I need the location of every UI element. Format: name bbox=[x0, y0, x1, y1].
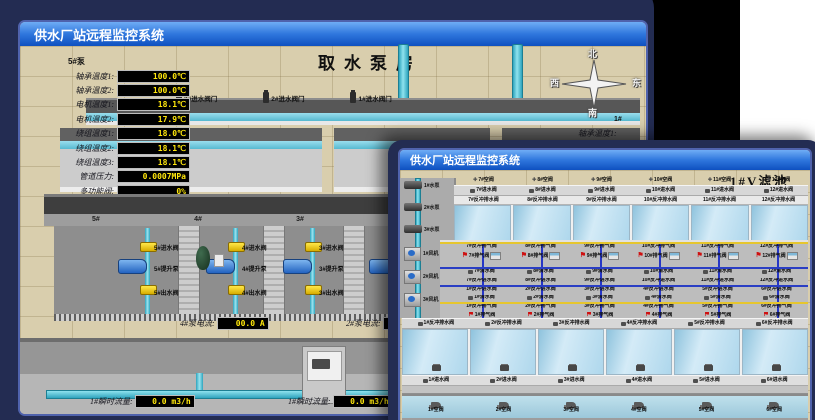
backwash-drain-valve[interactable]: 12#反冲排水阀 bbox=[749, 196, 808, 204]
valve-label: 5#出水阀 bbox=[154, 288, 179, 297]
inlet-valve[interactable]: 1#进水阀 bbox=[402, 376, 470, 385]
inlet-valve[interactable]: 5#进水阀 bbox=[673, 376, 741, 385]
valve-label: 5#进水阀 bbox=[699, 378, 720, 383]
flow-meter-left: 1#瞬时流量: 0.0 m3/h bbox=[90, 395, 195, 408]
inlet-gate-valves: 3#进水阀门 2#进水阀门 1#进水阀门 bbox=[176, 92, 392, 103]
flow-meter-right: 1#瞬时流量: 0.0 m3/h bbox=[288, 395, 393, 408]
compass: 北 西 南 东 bbox=[552, 50, 648, 124]
inlet-valve[interactable]: 12#进水阀 bbox=[749, 186, 808, 195]
valve-label: 8#反冲排水阀 bbox=[527, 198, 558, 203]
valve-label: 7#进水阀 bbox=[476, 188, 497, 193]
exhaust-valve[interactable]: 12#排气阀 bbox=[747, 252, 806, 260]
bf-inlet-row-top: 7#反冲进水阀8#反冲进水阀9#反冲进水阀10#反冲进水阀11#反冲进水阀12#… bbox=[452, 278, 806, 283]
valve-label: 5#反冲进水阀 bbox=[702, 287, 733, 292]
top-pool-row: ✚ 7#空阀 ✚ 8#空阀 ✚ 9#空阀 bbox=[454, 176, 808, 243]
water-pumps: 1#水泵 2#水泵 3#水泵 bbox=[404, 174, 440, 240]
meter-label: 1#瞬时流量: bbox=[90, 396, 133, 407]
bottom-pool-row: 1#反冲排水阀 2#反冲排水阀 3#反冲排水阀 bbox=[402, 318, 808, 420]
compass-east: 东 bbox=[632, 76, 641, 89]
valve-icon bbox=[761, 379, 766, 383]
valve-icon bbox=[762, 270, 767, 274]
inlet-valve[interactable]: 4#进水阀 bbox=[605, 376, 673, 385]
valve-icon bbox=[645, 296, 650, 300]
sensor-row: 绕组温度1: 18.0℃ bbox=[24, 127, 200, 141]
valve-icon bbox=[470, 189, 475, 193]
bay-header: 5# bbox=[92, 214, 100, 226]
clean-water-valve[interactable]: 1#清水阀 bbox=[452, 295, 511, 300]
valve-label: 11#反冲排气阀 bbox=[701, 244, 734, 249]
valve-icon bbox=[763, 296, 768, 300]
inlet-valve[interactable]: 3#进水阀 bbox=[537, 376, 605, 385]
pump-bay-4: 4#进水阀 4#提升泵 4#出水阀 bbox=[205, 228, 291, 314]
backwash-drain-valve[interactable]: 1#反冲排水阀 bbox=[402, 319, 470, 328]
pump-icon bbox=[404, 181, 422, 189]
valve-label: 7#空阀 bbox=[478, 178, 494, 183]
clean-water-valve[interactable]: 11#清水阀 bbox=[688, 269, 747, 274]
exhaust-valve[interactable]: 8#排气阀 bbox=[511, 252, 570, 260]
valve-label: 11#反冲进水阀 bbox=[701, 278, 734, 283]
backwash-inlet-valve[interactable]: 5#反冲进水阀 bbox=[688, 287, 747, 292]
valve-label: 1#空阀 bbox=[428, 408, 444, 413]
valve-label: 11#清水阀 bbox=[709, 269, 732, 274]
valve-icon bbox=[588, 189, 593, 193]
backwash-drain-valve[interactable]: 3#反冲排水阀 bbox=[537, 319, 605, 328]
air-valve-row: ✚ 7#空阀 ✚ 8#空阀 ✚ 9#空阀 bbox=[454, 176, 808, 185]
backwash-drain-valve[interactable]: 8#反冲排水阀 bbox=[513, 196, 572, 204]
blowers: 1#风机 2#风机 3#风机 bbox=[404, 242, 439, 311]
backwash-drain-valve[interactable]: 4#反冲排水阀 bbox=[605, 319, 673, 328]
valve-label: 6#反冲排气阀 bbox=[761, 304, 792, 309]
valve-icon bbox=[485, 322, 490, 326]
valve-icon bbox=[704, 296, 709, 300]
backwash-drain-row: 1#反冲排水阀 2#反冲排水阀 3#反冲排水阀 bbox=[402, 318, 808, 329]
pump-icon bbox=[404, 225, 422, 233]
backwash-exhaust-valve[interactable]: 4#反冲排气阀 bbox=[629, 304, 688, 309]
valve-label: 3#出水阀 bbox=[319, 288, 344, 297]
filter-pool bbox=[632, 205, 689, 243]
valve-label: 11#空阀 bbox=[713, 178, 731, 183]
sensor-row: 轴承温度1: bbox=[578, 127, 648, 140]
valve-label: 8#进水阀 bbox=[535, 188, 556, 193]
scada-desktop: 供水厂站远程监控系统 取水泵房 bbox=[0, 0, 815, 420]
inlet-valve[interactable]: 7#进水阀 bbox=[454, 186, 513, 195]
valve-label: 7#反冲进水阀 bbox=[466, 278, 497, 283]
valve-label: 5#清水阀 bbox=[710, 295, 731, 300]
valve-label: 10#排气阀 bbox=[644, 254, 667, 259]
equipment-label: 1#水泵 bbox=[424, 182, 440, 189]
backwash-exhaust-valve[interactable]: 2#反冲排气阀 bbox=[511, 304, 570, 309]
blower[interactable]: 1#风机 bbox=[404, 242, 439, 265]
tank-icon bbox=[549, 252, 560, 260]
inlet-valve-row: 1#进水阀 2#进水阀 3#进水阀 bbox=[402, 375, 808, 386]
valve-icon bbox=[586, 270, 591, 274]
clean-water-valve[interactable]: 9#清水阀 bbox=[570, 269, 629, 274]
valve-label: 12#反冲排气阀 bbox=[760, 244, 793, 249]
window-frame: 供水厂站远程监控系统 1#V滤池 1#水泵 bbox=[398, 148, 812, 420]
air-valve[interactable]: 1#空阀 bbox=[402, 396, 470, 418]
valve-label: 8#空阀 bbox=[537, 178, 553, 183]
valve-icon bbox=[756, 322, 761, 326]
valve-label: 4#反冲排水阀 bbox=[627, 321, 658, 326]
pump-label: 3#提升泵 bbox=[319, 264, 344, 273]
clean-water-valve[interactable]: 5#清水阀 bbox=[688, 295, 747, 300]
valve-label: 1#反冲排水阀 bbox=[424, 321, 455, 326]
blower[interactable]: 3#风机 bbox=[404, 288, 439, 311]
valve-label: 7#反冲排水阀 bbox=[468, 198, 499, 203]
air-valve[interactable]: 6#空阀 bbox=[740, 396, 808, 418]
red-flag-icon bbox=[755, 253, 761, 260]
exhaust-valve[interactable]: 11#排气阀 bbox=[688, 252, 747, 260]
exhaust-valve[interactable]: 7#排气阀 bbox=[452, 252, 511, 260]
titlebar[interactable]: 供水厂站远程监控系统 bbox=[20, 22, 646, 46]
inlet-valve[interactable]: 6#进水阀 bbox=[740, 376, 808, 385]
valve-icon bbox=[621, 322, 626, 326]
equipment-label: 2#水泵 bbox=[424, 204, 440, 211]
sensor-row: 绕组温度3: 18.1℃ bbox=[24, 155, 200, 169]
backwash-inlet-valve[interactable]: 12#反冲进水阀 bbox=[747, 278, 806, 283]
valve-label: 12#反冲进水阀 bbox=[760, 278, 793, 283]
backwash-exhaust-valve[interactable]: 11#反冲排气阀 bbox=[688, 244, 747, 249]
backwash-drain-valve[interactable]: 11#反冲排水阀 bbox=[690, 196, 749, 204]
valve-label: 8#排气阀 bbox=[528, 254, 549, 259]
valve-icon bbox=[529, 189, 534, 193]
clean-water-valve[interactable]: 10#清水阀 bbox=[629, 269, 688, 274]
backwash-drain-valve[interactable]: 6#反冲排水阀 bbox=[740, 319, 808, 328]
backwash-inlet-valve[interactable]: 10#反冲进水阀 bbox=[629, 278, 688, 283]
sensor-row: 管道压力: 0.0007MPa bbox=[24, 170, 200, 184]
valve-label: 12#进水阀 bbox=[770, 188, 793, 193]
valve-label: 4#空阀 bbox=[631, 408, 647, 413]
sensor-label: 管道压力: bbox=[24, 171, 117, 182]
control-panel-icon bbox=[214, 254, 224, 267]
filter-pool bbox=[513, 205, 570, 243]
backwash-inlet-valve[interactable]: 9#反冲进水阀 bbox=[570, 278, 629, 283]
valve-label: 8#反冲进水阀 bbox=[525, 278, 556, 283]
red-flag-icon bbox=[580, 253, 586, 260]
valve-label: 6#反冲排水阀 bbox=[762, 321, 793, 326]
inlet-valve[interactable]: 10#进水阀 bbox=[631, 186, 690, 195]
inlet-valve[interactable]: 2#进水阀 bbox=[470, 376, 538, 385]
valve-icon bbox=[490, 379, 495, 383]
water-pump[interactable]: 3#水泵 bbox=[404, 218, 440, 240]
valve-icon bbox=[644, 270, 649, 274]
backwash-exhaust-valve[interactable]: 8#反冲排气阀 bbox=[511, 244, 570, 249]
inlet-valve[interactable]: 9#进水阀 bbox=[572, 186, 631, 195]
window-title: 供水厂站远程监控系统 bbox=[34, 25, 164, 44]
valve-label: 11#排气阀 bbox=[703, 254, 726, 259]
tank-icon bbox=[669, 252, 680, 260]
valve-icon bbox=[688, 322, 693, 326]
valve-label: 5#空阀 bbox=[699, 408, 715, 413]
valve-icon bbox=[693, 379, 698, 383]
valve-label: 11#进水阀 bbox=[711, 188, 734, 193]
valve-label: 12#清水阀 bbox=[768, 269, 791, 274]
pool-valve-icon bbox=[704, 365, 713, 371]
valve-label: 6#清水阀 bbox=[769, 295, 790, 300]
inlet-channel: 1#空阀 2#空阀 3#空阀 bbox=[402, 394, 808, 420]
backwash-inlet-valve[interactable]: 11#反冲进水阀 bbox=[688, 278, 747, 283]
valve-label: 10#反冲排水阀 bbox=[644, 198, 677, 203]
sensor-value: 18.1℃ bbox=[117, 142, 190, 155]
inlet-gate-valve[interactable]: 2#进水阀门 bbox=[263, 92, 304, 103]
gate-valve-icon bbox=[263, 92, 269, 103]
valve-label: 1#进水阀 bbox=[429, 378, 450, 383]
sensor-label: 电机温度2: bbox=[24, 114, 117, 125]
panel-header: 1# bbox=[614, 116, 648, 127]
tank-icon bbox=[787, 252, 798, 260]
backwash-exhaust-valve[interactable]: 1#反冲排气阀 bbox=[452, 304, 511, 309]
meter-value: 00.0 A bbox=[217, 317, 269, 330]
valve-label: 12#反冲排水阀 bbox=[762, 198, 795, 203]
pump5-sensor-panel: 5#泵 轴承温度1: 100.0℃ 轴承温度2: 100.0℃ bbox=[24, 56, 200, 199]
equipment-label: 3#风机 bbox=[423, 296, 439, 303]
inlet-valve-row: 7#进水阀 8#进水阀 9#进水阀 bbox=[454, 185, 808, 196]
backwash-inlet-valve[interactable]: 2#反冲进水阀 bbox=[511, 287, 570, 292]
riser-pipe bbox=[512, 44, 523, 100]
valve-label: 10#反冲进水阀 bbox=[642, 278, 675, 283]
walkway-strip bbox=[402, 386, 808, 394]
window-title: 供水厂站远程监控系统 bbox=[410, 152, 520, 168]
backwash-drain-row: 7#反冲排水阀 8#反冲排水阀 9#反冲排水阀 bbox=[454, 196, 808, 205]
clean-water-valve[interactable]: 12#清水阀 bbox=[747, 269, 806, 274]
sensor-label: 绕组温度3: bbox=[24, 157, 117, 168]
sensor-value: 100.0℃ bbox=[117, 84, 190, 97]
valve-label: 8#清水阀 bbox=[533, 269, 554, 274]
backwash-inlet-valve[interactable]: 7#反冲进水阀 bbox=[452, 278, 511, 283]
sensor-value: 18.1℃ bbox=[117, 98, 190, 111]
valve-label: 4#反冲排气阀 bbox=[643, 304, 674, 309]
filter-pool bbox=[538, 329, 604, 375]
valve-label: 2#反冲排水阀 bbox=[491, 321, 522, 326]
riser-pipe bbox=[398, 44, 409, 100]
panel-header: 5#泵 bbox=[68, 56, 200, 69]
valve-label: 1#反冲进水阀 bbox=[466, 287, 497, 292]
clean-water-valve[interactable]: 6#清水阀 bbox=[747, 295, 806, 300]
air-valve[interactable]: ✚ 12#空阀 bbox=[749, 176, 808, 185]
equipment-label: 1#风机 bbox=[423, 250, 439, 257]
red-flag-icon bbox=[696, 253, 702, 260]
valve-label: 6#反冲进水阀 bbox=[761, 287, 792, 292]
valve-label: 3#清水阀 bbox=[592, 295, 613, 300]
valve-label: 3#进水阀 bbox=[319, 243, 344, 252]
filter-pool bbox=[691, 205, 748, 243]
meter-label: 1#瞬时流量: bbox=[288, 396, 331, 407]
valve-label: 1#反冲排气阀 bbox=[466, 304, 497, 309]
valve-icon bbox=[418, 322, 423, 326]
filter-pools-bottom bbox=[402, 329, 808, 375]
equipment-label: 3#水泵 bbox=[424, 226, 440, 233]
backwash-inlet-valve[interactable]: 1#反冲进水阀 bbox=[452, 287, 511, 292]
inlet-valve[interactable]: 11#进水阀 bbox=[690, 186, 749, 195]
valve-label: 10#进水阀 bbox=[652, 188, 675, 193]
backwash-exhaust-valve[interactable]: 10#反冲排气阀 bbox=[629, 244, 688, 249]
valve-label: 10#反冲排气阀 bbox=[642, 244, 675, 249]
air-valve[interactable]: ✚ 11#空阀 bbox=[690, 176, 749, 185]
backwash-drain-valve[interactable]: 10#反冲排水阀 bbox=[631, 196, 690, 204]
air-valve[interactable]: ✚ 10#空阀 bbox=[631, 176, 690, 185]
exhaust-valve[interactable]: 9#排气阀 bbox=[570, 252, 629, 260]
valve-label: 7#排气阀 bbox=[469, 254, 490, 259]
filter-pool bbox=[742, 329, 808, 375]
blower-icon bbox=[404, 247, 421, 261]
valve-icon bbox=[468, 270, 473, 274]
valve-label: 9#清水阀 bbox=[592, 269, 613, 274]
red-flag-icon bbox=[521, 253, 527, 260]
filter-pool bbox=[470, 329, 536, 375]
pool-valve-icon bbox=[772, 365, 781, 371]
valve-label: 4#进水阀 bbox=[242, 243, 267, 252]
valve-label: 2#空阀 bbox=[496, 408, 512, 413]
sensor-row: 电机温度1: 18.1℃ bbox=[24, 98, 200, 112]
valve-label: 9#反冲排水阀 bbox=[586, 198, 617, 203]
inlet-gate-valve[interactable]: 1#进水阀门 bbox=[350, 92, 391, 103]
air-valve[interactable]: ✚ 7#空阀 bbox=[454, 176, 513, 185]
backwash-drain-valve[interactable]: 2#反冲排水阀 bbox=[470, 319, 538, 328]
exhaust-valve[interactable]: 10#排气阀 bbox=[629, 252, 688, 260]
air-valve[interactable]: 5#空阀 bbox=[673, 396, 741, 418]
valve-icon bbox=[764, 189, 769, 193]
valve-icon bbox=[646, 189, 651, 193]
valve-icon bbox=[558, 379, 563, 383]
valve-icon bbox=[527, 270, 532, 274]
backwash-inlet-valve[interactable]: 6#反冲进水阀 bbox=[747, 287, 806, 292]
air-valve[interactable]: 2#空阀 bbox=[470, 396, 538, 418]
valve-label: 2#进水阀 bbox=[496, 378, 517, 383]
filter-pool bbox=[454, 205, 511, 243]
lift-pump-icon[interactable] bbox=[118, 259, 147, 274]
backwash-exhaust-valve[interactable]: 5#反冲排气阀 bbox=[688, 304, 747, 309]
valve-label: 7#反冲排气阀 bbox=[466, 244, 497, 249]
backwash-inlet-valve[interactable]: 4#反冲进水阀 bbox=[629, 287, 688, 292]
valve-label: 5#反冲排水阀 bbox=[694, 321, 725, 326]
backwash-drain-valve[interactable]: 9#反冲排水阀 bbox=[572, 196, 631, 204]
clean-water-valve[interactable]: 4#清水阀 bbox=[629, 295, 688, 300]
valve-label: 12#空阀 bbox=[772, 178, 790, 183]
tank-icon bbox=[728, 252, 739, 260]
sensor-label: 电机温度1: bbox=[24, 99, 117, 110]
tank-icon bbox=[490, 252, 501, 260]
meter-value: 0.0 m3/h bbox=[135, 395, 195, 408]
clean-water-valve[interactable]: 7#清水阀 bbox=[452, 269, 511, 274]
meter-value: 0.0 m3/h bbox=[333, 395, 393, 408]
pool-valve-icon bbox=[568, 365, 577, 371]
sensor-value: 18.1℃ bbox=[117, 156, 190, 169]
bf-exhaust-row-bottom: 1#反冲排气阀2#反冲排气阀3#反冲排气阀4#反冲排气阀5#反冲排气阀6#反冲排… bbox=[452, 304, 806, 309]
filter-pool bbox=[674, 329, 740, 375]
backwash-inlet-valve[interactable]: 3#反冲进水阀 bbox=[570, 287, 629, 292]
backwash-exhaust-valve[interactable]: 12#反冲排气阀 bbox=[747, 244, 806, 249]
valve-icon bbox=[423, 379, 428, 383]
backwash-inlet-valve[interactable]: 8#反冲进水阀 bbox=[511, 278, 570, 283]
air-valve[interactable]: ✚ 8#空阀 bbox=[513, 176, 572, 185]
sensor-value: 17.9℃ bbox=[117, 113, 190, 126]
titlebar[interactable]: 供水厂站远程监控系统 bbox=[400, 150, 810, 170]
valve-cross-icon: ✚ bbox=[708, 178, 712, 183]
valve-label: 9#空阀 bbox=[596, 178, 612, 183]
pump-icon bbox=[404, 203, 422, 211]
valve-label: 12#排气阀 bbox=[762, 254, 785, 259]
valve-label: 9#反冲排气阀 bbox=[584, 244, 615, 249]
valve-label: 3#进水阀 bbox=[564, 378, 585, 383]
valve-icon bbox=[468, 296, 473, 300]
bf-inlet-row-bottom: 1#反冲进水阀2#反冲进水阀3#反冲进水阀4#反冲进水阀5#反冲进水阀6#反冲进… bbox=[452, 287, 806, 292]
tank-icon bbox=[608, 252, 619, 260]
dosing-tank-icon bbox=[196, 246, 210, 270]
valve-cross-icon: ✚ bbox=[591, 178, 595, 183]
meter-label: 4#泵电流: bbox=[180, 318, 215, 329]
valve-icon bbox=[527, 296, 532, 300]
valve-label: 8#反冲排气阀 bbox=[525, 244, 556, 249]
valve-label: 5#进水阀 bbox=[154, 243, 179, 252]
valve-icon bbox=[705, 189, 710, 193]
clean-water-valve[interactable]: 2#清水阀 bbox=[511, 295, 570, 300]
valve-gallery: 7#反冲排气阀8#反冲排气阀9#反冲排气阀10#反冲排气阀11#反冲排气阀12#… bbox=[440, 240, 808, 320]
air-valve[interactable]: ✚ 9#空阀 bbox=[572, 176, 631, 185]
sensor-value: 18.0℃ bbox=[117, 127, 190, 140]
backwash-exhaust-valve[interactable]: 9#反冲排气阀 bbox=[570, 244, 629, 249]
clean-water-valve[interactable]: 3#清水阀 bbox=[570, 295, 629, 300]
pump-bay-5: 5#进水阀 5#提升泵 5#出水阀 bbox=[117, 228, 203, 314]
sensor-label: 绕组温度2: bbox=[24, 143, 117, 154]
valve-label: 10#清水阀 bbox=[650, 269, 673, 274]
window-filter-pool: 供水厂站远程监控系统 1#V滤池 1#水泵 bbox=[388, 140, 815, 420]
valve-label: 4#出水阀 bbox=[242, 288, 267, 297]
valve-label: 4#反冲进水阀 bbox=[643, 287, 674, 292]
valve-label: 10#空阀 bbox=[654, 178, 672, 183]
lift-pump-icon[interactable] bbox=[283, 259, 312, 274]
clean-water-row-top: 7#清水阀8#清水阀9#清水阀10#清水阀11#清水阀12#清水阀 bbox=[452, 269, 806, 274]
water-pump[interactable]: 1#水泵 bbox=[404, 174, 440, 196]
pool-valve-icon bbox=[432, 365, 441, 371]
sensor-value: 0.0007MPa bbox=[117, 170, 190, 183]
valve-icon bbox=[586, 296, 591, 300]
blower-icon bbox=[404, 270, 421, 284]
valve-cross-icon: ✚ bbox=[532, 178, 536, 183]
exhaust-row-top: 7#排气阀 8#排气阀 9# bbox=[452, 252, 806, 260]
pump4-current-meter: 4#泵电流: 00.0 A bbox=[180, 317, 269, 330]
clean-water-valve[interactable]: 8#清水阀 bbox=[511, 269, 570, 274]
sensor-label: 轴承温度1: bbox=[578, 128, 620, 139]
filter-pool bbox=[402, 329, 468, 375]
valve-label: 3#反冲排水阀 bbox=[559, 321, 590, 326]
sensor-row: 绕组温度2: 18.1℃ bbox=[24, 141, 200, 155]
backwash-exhaust-valve[interactable]: 3#反冲排气阀 bbox=[570, 304, 629, 309]
pump-label: 5#提升泵 bbox=[154, 264, 179, 273]
water-pump[interactable]: 2#水泵 bbox=[404, 196, 440, 218]
valve-label: 6#空阀 bbox=[766, 408, 782, 413]
blower[interactable]: 2#风机 bbox=[404, 265, 439, 288]
compass-north: 北 bbox=[588, 47, 597, 60]
valve-label: 2#进水阀门 bbox=[271, 93, 304, 103]
cabinet-device-icon bbox=[312, 359, 330, 369]
air-valve[interactable]: 3#空阀 bbox=[537, 396, 605, 418]
valve-cross-icon: ✚ bbox=[473, 178, 477, 183]
equipment-label: 2#风机 bbox=[423, 273, 439, 280]
inlet-valve[interactable]: 8#进水阀 bbox=[513, 186, 572, 195]
valve-icon bbox=[626, 379, 631, 383]
backwash-drain-valve[interactable]: 5#反冲排水阀 bbox=[673, 319, 741, 328]
backwash-exhaust-valve[interactable]: 7#反冲排气阀 bbox=[452, 244, 511, 249]
valve-label: 6#进水阀 bbox=[767, 378, 788, 383]
backwash-drain-valve[interactable]: 7#反冲排水阀 bbox=[454, 196, 513, 204]
backwash-exhaust-valve[interactable]: 6#反冲排气阀 bbox=[747, 304, 806, 309]
valve-label: 11#反冲排水阀 bbox=[703, 198, 736, 203]
sensor-rows: 轴承温度1: 100.0℃ 轴承温度2: 100.0℃ 电机温度1: bbox=[24, 69, 200, 199]
valve-label: 9#反冲进水阀 bbox=[584, 278, 615, 283]
air-valve[interactable]: 4#空阀 bbox=[605, 396, 673, 418]
valve-label: 4#清水阀 bbox=[651, 295, 672, 300]
compass-west: 西 bbox=[550, 76, 559, 89]
